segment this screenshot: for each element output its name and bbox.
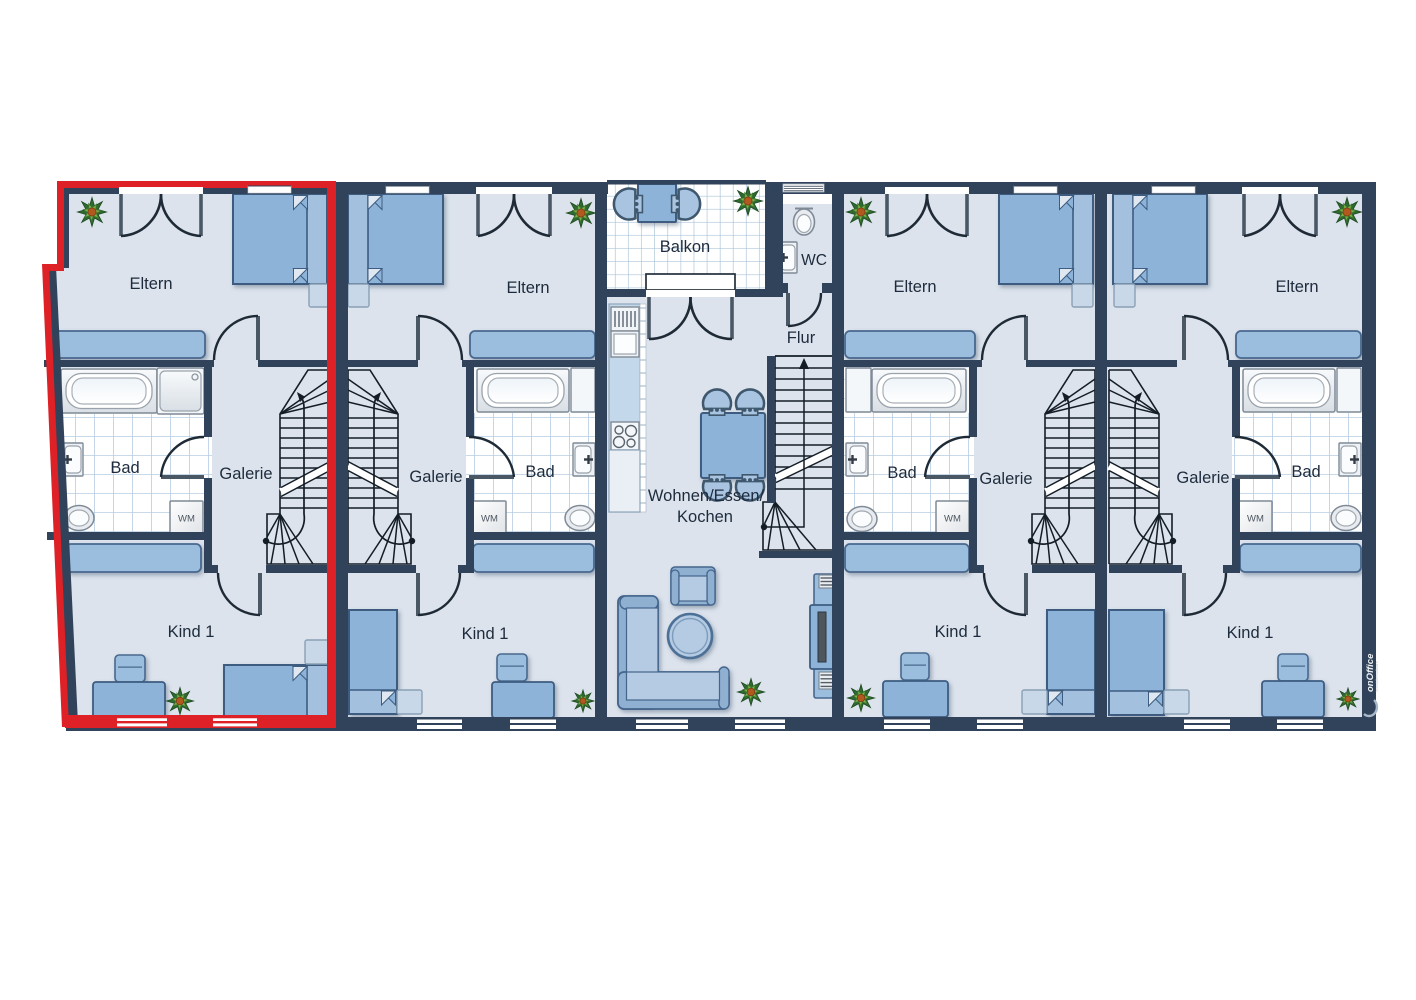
svg-text:Kind 1: Kind 1: [1227, 624, 1274, 642]
svg-text:WM: WM: [178, 514, 195, 525]
svg-text:Balkon: Balkon: [660, 238, 710, 256]
svg-text:Galerie: Galerie: [979, 470, 1032, 488]
svg-text:Galerie: Galerie: [219, 465, 272, 483]
svg-text:Bad: Bad: [1291, 463, 1320, 481]
svg-text:WM: WM: [1247, 514, 1264, 525]
svg-text:WM: WM: [481, 514, 498, 525]
svg-text:Eltern: Eltern: [506, 279, 549, 297]
svg-text:Flur: Flur: [787, 329, 816, 347]
svg-text:Wohnen/Essen/: Wohnen/Essen/: [648, 487, 765, 505]
svg-text:Bad: Bad: [110, 459, 139, 477]
svg-text:Kind 1: Kind 1: [168, 623, 215, 641]
svg-text:WM: WM: [944, 514, 961, 525]
svg-text:Galerie: Galerie: [409, 468, 462, 486]
svg-text:immobiliensoftware: immobiliensoftware: [1375, 661, 1379, 692]
svg-text:Kind 1: Kind 1: [462, 625, 509, 643]
svg-text:Kind 1: Kind 1: [935, 623, 982, 641]
svg-text:Bad: Bad: [525, 463, 554, 481]
svg-text:Eltern: Eltern: [893, 278, 936, 296]
svg-text:Bad: Bad: [887, 464, 916, 482]
svg-text:Kochen: Kochen: [677, 508, 733, 526]
svg-text:Eltern: Eltern: [1275, 278, 1318, 296]
svg-text:Eltern: Eltern: [129, 275, 172, 293]
svg-text:Galerie: Galerie: [1176, 469, 1229, 487]
svg-text:WC: WC: [801, 252, 827, 269]
